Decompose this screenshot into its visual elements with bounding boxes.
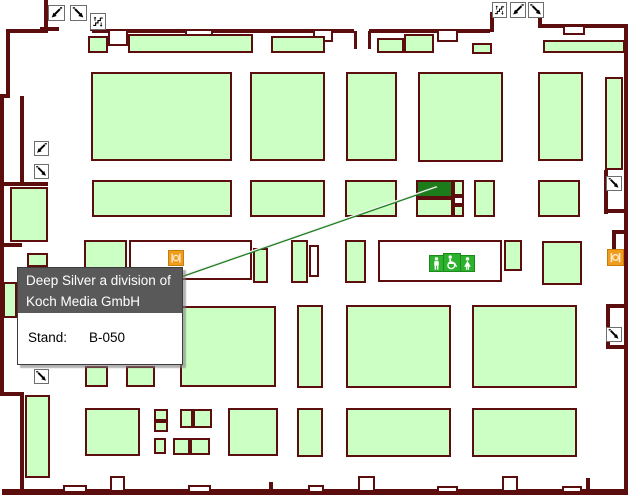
wall-opening bbox=[502, 476, 518, 492]
wall-opening bbox=[586, 478, 590, 490]
booth[interactable] bbox=[271, 36, 325, 53]
booth[interactable] bbox=[543, 40, 625, 53]
escalator-down-icon bbox=[34, 141, 49, 156]
booth[interactable] bbox=[253, 248, 268, 283]
wall bbox=[368, 31, 371, 49]
booth[interactable] bbox=[91, 72, 232, 161]
booth[interactable] bbox=[291, 240, 308, 283]
wall bbox=[20, 394, 24, 492]
booth[interactable] bbox=[88, 36, 108, 53]
wall bbox=[606, 304, 626, 308]
booth[interactable] bbox=[345, 180, 397, 217]
booth[interactable] bbox=[180, 409, 193, 428]
wall bbox=[606, 345, 628, 349]
tooltip-title-line2: Koch Media GmbH bbox=[26, 291, 176, 312]
escalator-up-icon bbox=[34, 369, 49, 384]
hall-area bbox=[453, 196, 464, 205]
tooltip-stand: Stand: B-050 bbox=[18, 313, 182, 345]
booth[interactable] bbox=[453, 180, 464, 196]
booth[interactable] bbox=[297, 408, 323, 457]
booth[interactable] bbox=[542, 241, 582, 285]
booth[interactable] bbox=[193, 409, 212, 428]
booth[interactable] bbox=[180, 306, 276, 387]
wall bbox=[20, 96, 24, 182]
booth[interactable] bbox=[472, 43, 492, 54]
booth[interactable] bbox=[250, 72, 325, 161]
booth[interactable] bbox=[154, 421, 168, 432]
escalator-up-icon bbox=[606, 176, 622, 191]
escalator-up-icon bbox=[606, 327, 622, 342]
tooltip-title: Deep Silver a division of Koch Media Gmb… bbox=[18, 268, 182, 313]
wall bbox=[0, 243, 22, 247]
wall bbox=[6, 29, 10, 96]
booth[interactable] bbox=[504, 240, 522, 271]
escalator-up-icon bbox=[528, 2, 544, 18]
booth[interactable] bbox=[472, 408, 577, 457]
booth[interactable] bbox=[250, 180, 325, 217]
booth[interactable] bbox=[346, 408, 451, 457]
booth[interactable] bbox=[416, 198, 453, 217]
wall bbox=[624, 27, 628, 493]
booth[interactable] bbox=[128, 34, 253, 53]
wc-accessible-icon bbox=[443, 253, 461, 272]
booth[interactable] bbox=[190, 438, 210, 455]
booth[interactable] bbox=[154, 409, 168, 421]
wall bbox=[604, 209, 628, 213]
booth[interactable] bbox=[173, 438, 190, 455]
escalator-down-icon bbox=[48, 5, 65, 21]
booth[interactable] bbox=[3, 282, 17, 318]
restaurant-icon bbox=[168, 250, 184, 266]
booth[interactable] bbox=[92, 180, 232, 217]
tooltip-title-line1: Deep Silver a division of bbox=[26, 270, 176, 291]
booth-highlighted[interactable] bbox=[416, 180, 453, 198]
wall-opening bbox=[562, 486, 582, 493]
hall-area bbox=[309, 245, 319, 277]
wall-opening bbox=[358, 476, 375, 492]
booth[interactable] bbox=[85, 366, 108, 387]
booth[interactable] bbox=[297, 305, 323, 388]
booth[interactable] bbox=[10, 187, 48, 242]
booth[interactable] bbox=[228, 408, 278, 456]
wall-opening bbox=[63, 485, 87, 493]
booth[interactable] bbox=[538, 72, 583, 161]
booth[interactable] bbox=[453, 205, 464, 217]
stairs-icon bbox=[90, 13, 106, 30]
escalator-up-icon bbox=[70, 5, 87, 21]
wall bbox=[354, 31, 357, 49]
booth[interactable] bbox=[346, 72, 397, 161]
escalator-down-icon bbox=[510, 2, 526, 18]
booth[interactable] bbox=[345, 240, 366, 283]
booth[interactable] bbox=[404, 34, 434, 53]
wall-opening bbox=[437, 29, 458, 42]
stand-label: Stand: bbox=[28, 330, 67, 345]
booth[interactable] bbox=[472, 305, 577, 388]
stand-value: B-050 bbox=[89, 330, 125, 345]
hall-map: Deep Silver a division of Koch Media Gmb… bbox=[0, 0, 631, 495]
booth[interactable] bbox=[154, 438, 166, 454]
tooltip: Deep Silver a division of Koch Media Gmb… bbox=[17, 267, 183, 365]
wall bbox=[612, 230, 626, 234]
stairs-icon bbox=[492, 2, 507, 18]
booth[interactable] bbox=[418, 72, 503, 162]
booth[interactable] bbox=[126, 366, 155, 387]
wall-opening bbox=[437, 486, 458, 493]
wall-opening bbox=[110, 476, 125, 492]
booth[interactable] bbox=[27, 253, 48, 267]
booth[interactable] bbox=[474, 180, 495, 217]
wall-opening bbox=[563, 25, 585, 35]
wall bbox=[0, 182, 48, 186]
booth[interactable] bbox=[346, 305, 451, 388]
restaurant-icon bbox=[607, 249, 624, 266]
wc-women-icon bbox=[460, 255, 475, 272]
wall bbox=[369, 29, 490, 33]
escalator-up-icon bbox=[34, 164, 49, 179]
booth[interactable] bbox=[538, 180, 580, 217]
booth[interactable] bbox=[605, 77, 623, 170]
wall-opening bbox=[108, 29, 128, 46]
booth[interactable] bbox=[85, 408, 140, 456]
booth[interactable] bbox=[25, 395, 50, 478]
wall bbox=[40, 27, 59, 31]
wall-opening bbox=[269, 482, 273, 492]
wall-opening bbox=[308, 485, 324, 493]
booth[interactable] bbox=[377, 38, 404, 53]
wc-men-icon bbox=[429, 255, 444, 272]
wall-opening bbox=[188, 485, 211, 493]
